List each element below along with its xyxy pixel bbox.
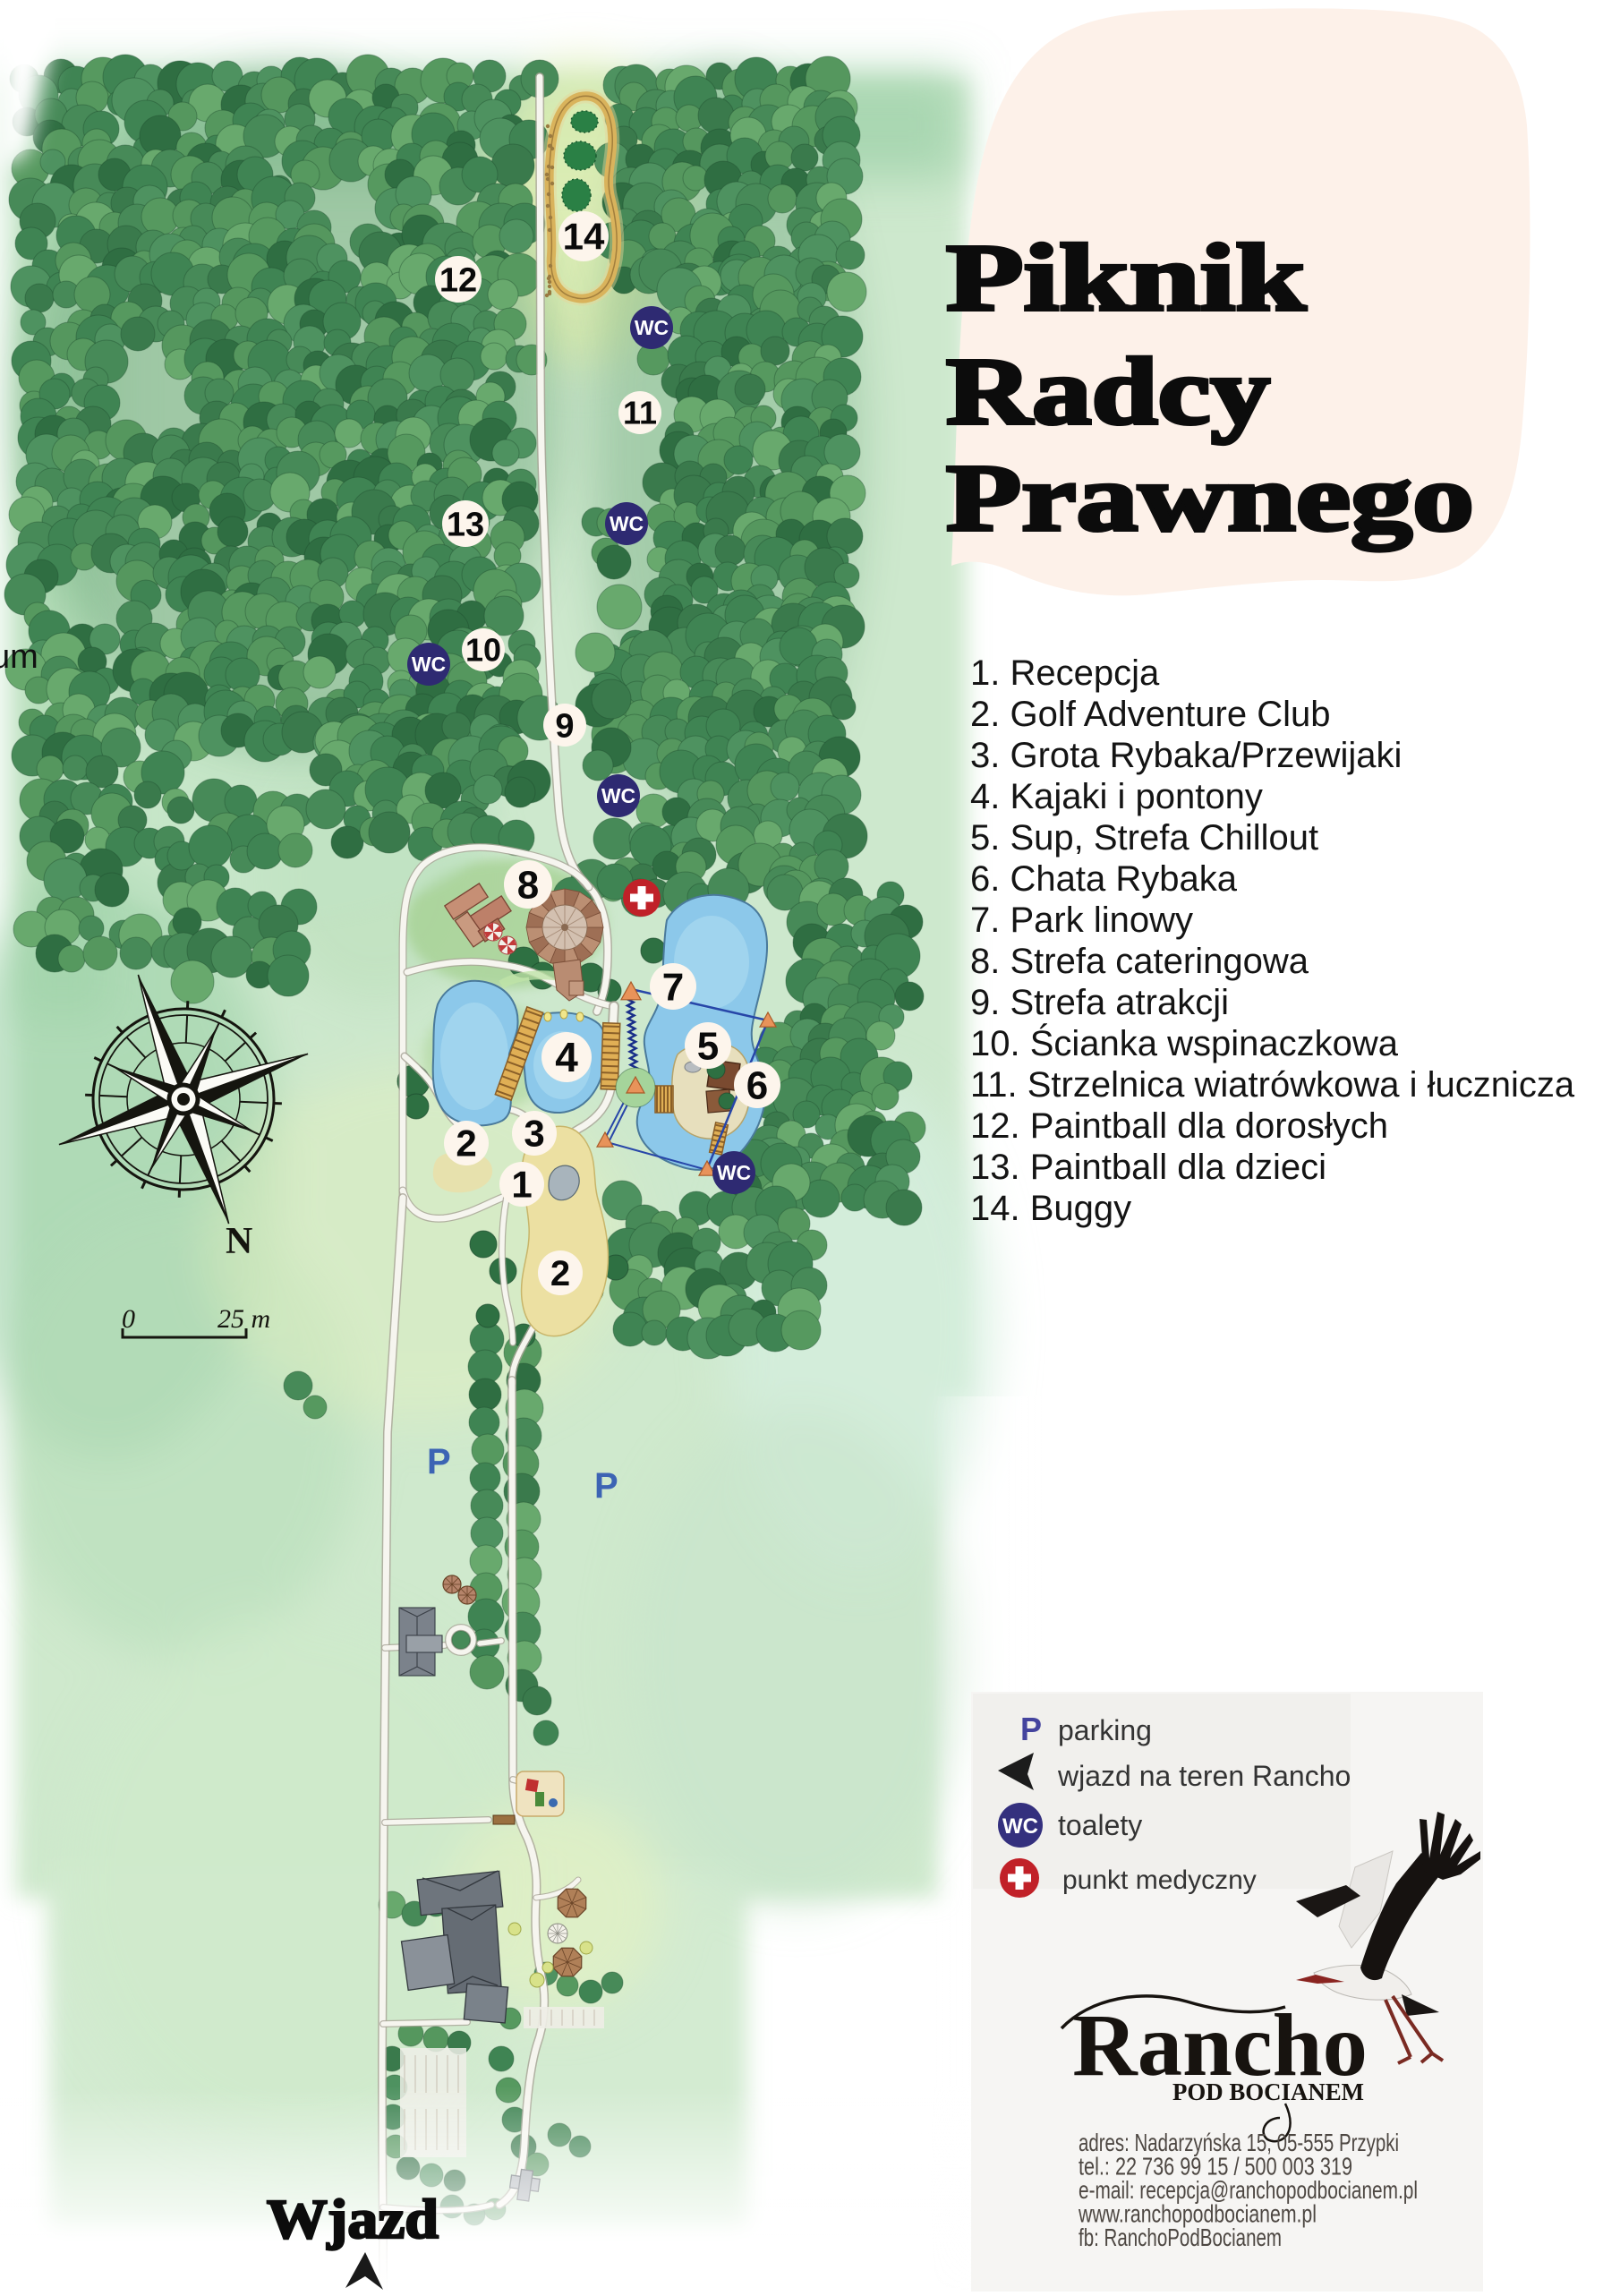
svg-text:13: 13	[447, 506, 484, 543]
svg-text:N: N	[226, 1221, 252, 1262]
svg-text:wjazd na teren Rancho: wjazd na teren Rancho	[1057, 1760, 1351, 1792]
svg-text:25 m: 25 m	[217, 1304, 270, 1334]
svg-text:2: 2	[550, 1254, 570, 1293]
svg-text:um: um	[0, 638, 38, 676]
svg-text:10. Ścianka wspinaczkowa: 10. Ścianka wspinaczkowa	[970, 1022, 1399, 1063]
svg-text:WC: WC	[610, 512, 644, 535]
svg-text:9. Strefa atrakcji: 9. Strefa atrakcji	[970, 983, 1229, 1022]
svg-text:14: 14	[563, 216, 605, 258]
svg-text:6. Chata Rybaka: 6. Chata Rybaka	[970, 859, 1238, 899]
svg-text:Piknik: Piknik	[946, 226, 1307, 331]
svg-text:P: P	[427, 1442, 451, 1481]
svg-text:6: 6	[746, 1063, 768, 1107]
svg-text:7. Park linowy: 7. Park linowy	[970, 900, 1193, 940]
svg-text:WC: WC	[412, 653, 446, 676]
svg-text:5. Sup, Strefa Chillout: 5. Sup, Strefa Chillout	[970, 818, 1318, 858]
svg-text:8: 8	[517, 863, 539, 907]
svg-text:2. Golf Adventure Club: 2. Golf Adventure Club	[970, 695, 1330, 734]
svg-text:4. Kajaki i pontony: 4. Kajaki i pontony	[970, 777, 1263, 816]
svg-text:fb: RanchoPodBocianem: fb: RanchoPodBocianem	[1079, 2223, 1282, 2251]
svg-text:P: P	[1020, 1711, 1042, 1747]
svg-text:Prawnego: Prawnego	[946, 446, 1474, 551]
svg-text:3. Grota Rybaka/Przewijaki: 3. Grota Rybaka/Przewijaki	[970, 736, 1402, 775]
svg-text:11. Strzelnica wiatrówkowa i ł: 11. Strzelnica wiatrówkowa i łucznicza	[970, 1065, 1575, 1105]
svg-text:WC: WC	[1002, 1814, 1038, 1839]
svg-text:1. Recepcja: 1. Recepcja	[970, 653, 1160, 693]
svg-text:13. Paintball dla dzieci: 13. Paintball dla dzieci	[970, 1148, 1326, 1187]
svg-text:14. Buggy: 14. Buggy	[970, 1189, 1131, 1228]
svg-text:10: 10	[465, 632, 501, 669]
svg-text:WC: WC	[635, 316, 669, 339]
svg-text:POD BOCIANEM: POD BOCIANEM	[1172, 2078, 1364, 2105]
svg-text:12. Paintball dla dorosłych: 12. Paintball dla dorosłych	[970, 1106, 1388, 1146]
svg-text:2: 2	[456, 1122, 476, 1165]
svg-text:WC: WC	[601, 784, 635, 807]
svg-text:5: 5	[697, 1024, 719, 1068]
svg-text:9: 9	[555, 707, 574, 745]
svg-text:Radcy: Radcy	[946, 339, 1270, 445]
svg-text:WC: WC	[717, 1161, 751, 1184]
svg-text:1: 1	[511, 1164, 532, 1206]
svg-text:P: P	[594, 1466, 618, 1506]
svg-text:punkt medyczny: punkt medyczny	[1062, 1865, 1257, 1895]
svg-text:toalety: toalety	[1058, 1809, 1142, 1841]
svg-text:3: 3	[524, 1113, 544, 1155]
svg-text:parking: parking	[1058, 1714, 1152, 1746]
svg-text:4: 4	[555, 1034, 578, 1080]
svg-text:11: 11	[623, 395, 657, 431]
svg-text:7: 7	[662, 965, 684, 1009]
svg-text:12: 12	[439, 261, 477, 299]
svg-text:8. Strefa cateringowa: 8. Strefa cateringowa	[970, 942, 1309, 981]
svg-text:Wjazd: Wjazd	[267, 2189, 439, 2250]
